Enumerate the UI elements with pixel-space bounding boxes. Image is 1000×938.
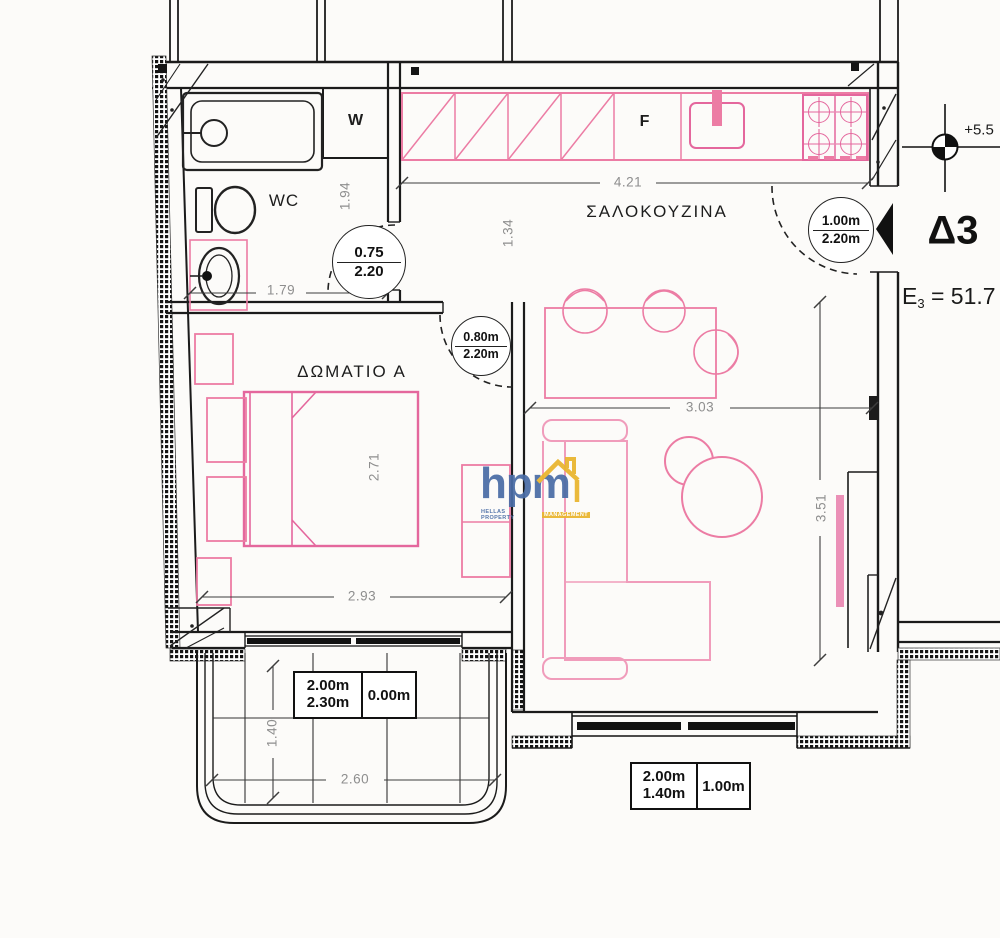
radiator (836, 495, 844, 607)
stove (803, 95, 867, 160)
wc-door-height: 2.20 (337, 263, 400, 280)
kitchen-counter (402, 93, 868, 160)
fridge-label: F (640, 113, 651, 131)
living-window-height: 1.40m (643, 786, 686, 803)
nightstands (195, 334, 246, 605)
area-symbol: E (902, 283, 917, 309)
unit-id: Δ3 (928, 209, 979, 254)
logo-tagline: HELLAS PROPERTY MANAGEMENT (481, 509, 590, 521)
balcony-door-sill: 0.00m (368, 687, 411, 704)
wc-sink (190, 240, 247, 310)
balcony-door-width: 2.00m (307, 678, 350, 695)
logo-tagline-right: MANAGEMENT (542, 512, 590, 518)
interior-walls (166, 62, 910, 748)
bedroom-door-size: 0.80m 2.20m (451, 316, 511, 376)
bed (244, 392, 418, 546)
living-window-sill: 1.00m (702, 778, 745, 795)
elevation-value: +5.5 (964, 122, 994, 139)
elevation-marker (902, 104, 1000, 192)
logo-tagline-left: HELLAS PROPERTY (481, 509, 540, 521)
unit-area: E3 = 51.7 (902, 283, 996, 311)
dim-bedroom-width: 2.93 (348, 589, 376, 604)
entry-door-leaf (876, 203, 893, 255)
entry-door-width: 1.00m (813, 214, 869, 230)
dim-living-width: 3.03 (686, 400, 714, 415)
toilet (196, 187, 255, 233)
hpm-logo: hpm HELLAS PROPERTY MANAGEMENT (478, 462, 590, 524)
washer-label: W (348, 112, 364, 130)
balcony-door-size-box: 2.00m 2.30m 0.00m (293, 671, 417, 719)
living-window-size-box: 2.00m 1.40m 1.00m (630, 762, 751, 810)
balcony-door-height: 2.30m (307, 695, 350, 712)
bedroom-label: ΔΩΜΑΤΙΟ Α (297, 362, 407, 382)
wc-door-width: 0.75 (337, 245, 400, 263)
living-room-label: ΣΑΛΟΚΟΥΖΙΝΑ (586, 202, 728, 222)
outer-walls (152, 0, 1000, 652)
dim-bed-length: 2.71 (367, 453, 382, 481)
dim-living-depth: 3.51 (814, 494, 829, 522)
dim-kitchen-run: 4.21 (614, 175, 642, 190)
house-icon (534, 454, 584, 506)
dim-hall: 1.34 (501, 219, 516, 247)
wc-label: WC (269, 191, 299, 211)
columns-hatch (156, 63, 896, 652)
dim-balcony-width: 2.60 (341, 772, 369, 787)
bedroom-door-height: 2.20m (455, 347, 506, 361)
area-subscript: 3 (917, 296, 924, 311)
bathtub (183, 93, 322, 170)
bedroom-balcony-door (245, 636, 462, 646)
dim-wc-depth: 1.94 (338, 182, 353, 210)
bedroom-door-width: 0.80m (455, 331, 506, 346)
entry-door-size: 1.00m 2.20m (808, 197, 874, 263)
dim-balcony-depth: 1.40 (265, 719, 280, 747)
living-window-width: 2.00m (643, 769, 686, 786)
floorplan-page: W WC F ΣΑΛΟΚΟΥΖΙΝΑ ΔΩΜΑΤΙΟ Α Δ3 +5.5 E3 … (0, 0, 1000, 938)
dim-wc-width: 1.79 (267, 283, 295, 298)
coffee-tables (665, 437, 762, 537)
area-value: = 51.7 (931, 283, 996, 309)
living-window (572, 716, 797, 736)
kitchen-sink (690, 90, 744, 148)
entry-door-height: 2.20m (813, 231, 869, 246)
dining-table (545, 308, 716, 398)
dining-chairs (563, 289, 738, 374)
wc-door-size: 0.75 2.20 (332, 225, 406, 299)
